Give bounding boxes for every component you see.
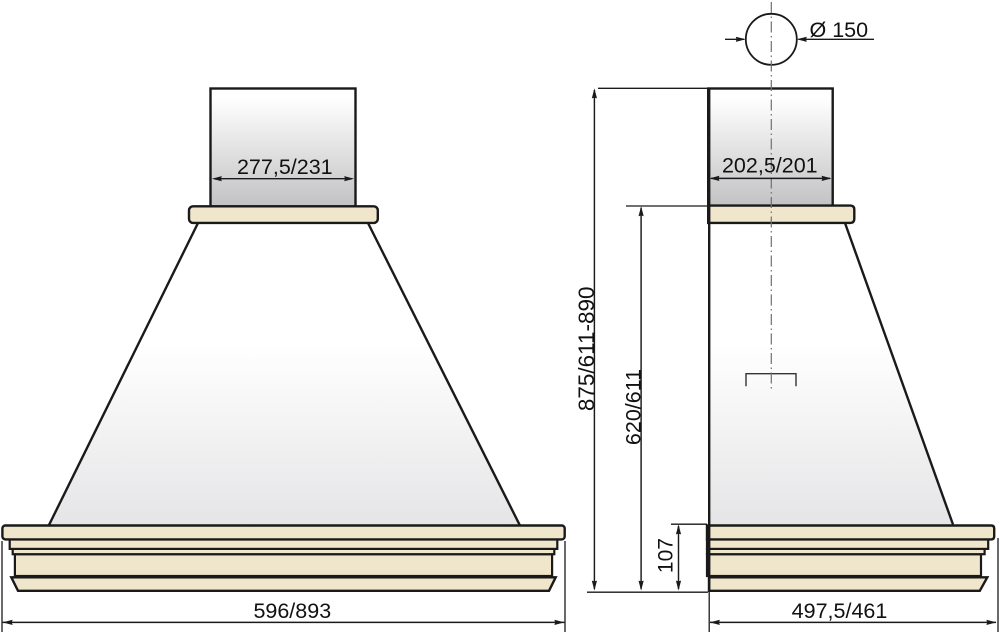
svg-text:107: 107 bbox=[655, 538, 678, 573]
svg-text:Ø 150: Ø 150 bbox=[810, 18, 869, 42]
svg-text:277,5/231: 277,5/231 bbox=[237, 155, 333, 179]
svg-text:202,5/201: 202,5/201 bbox=[722, 154, 818, 178]
svg-text:875/611-890: 875/611-890 bbox=[574, 286, 599, 411]
svg-text:620/611: 620/611 bbox=[622, 369, 646, 445]
svg-text:596/893: 596/893 bbox=[253, 599, 331, 623]
svg-text:497,5/461: 497,5/461 bbox=[792, 599, 888, 623]
